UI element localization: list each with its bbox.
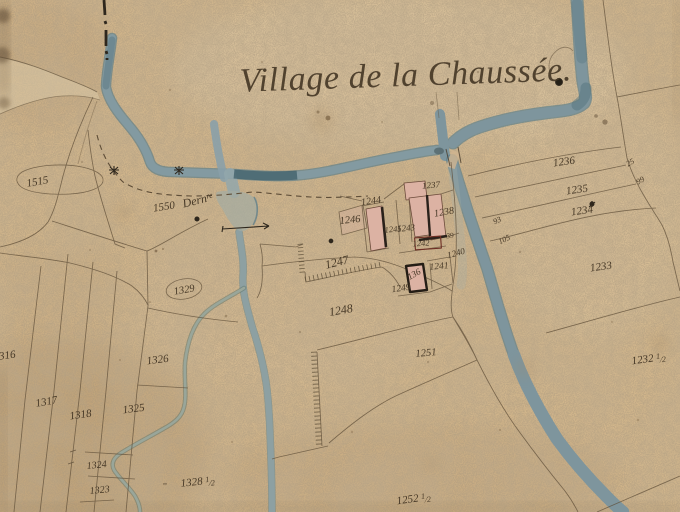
svg-text:1237: 1237 [422, 179, 441, 191]
svg-text:1242: 1242 [412, 237, 430, 248]
svg-text:1251: 1251 [415, 347, 437, 360]
svg-text:1241: 1241 [429, 261, 449, 273]
svg-text:39: 39 [445, 230, 455, 240]
svg-text:1324: 1324 [86, 459, 107, 472]
svg-text:,,: ,, [163, 477, 167, 486]
svg-text:1243: 1243 [397, 222, 416, 234]
svg-text:1246: 1246 [339, 214, 362, 227]
svg-text:1323: 1323 [89, 484, 110, 497]
